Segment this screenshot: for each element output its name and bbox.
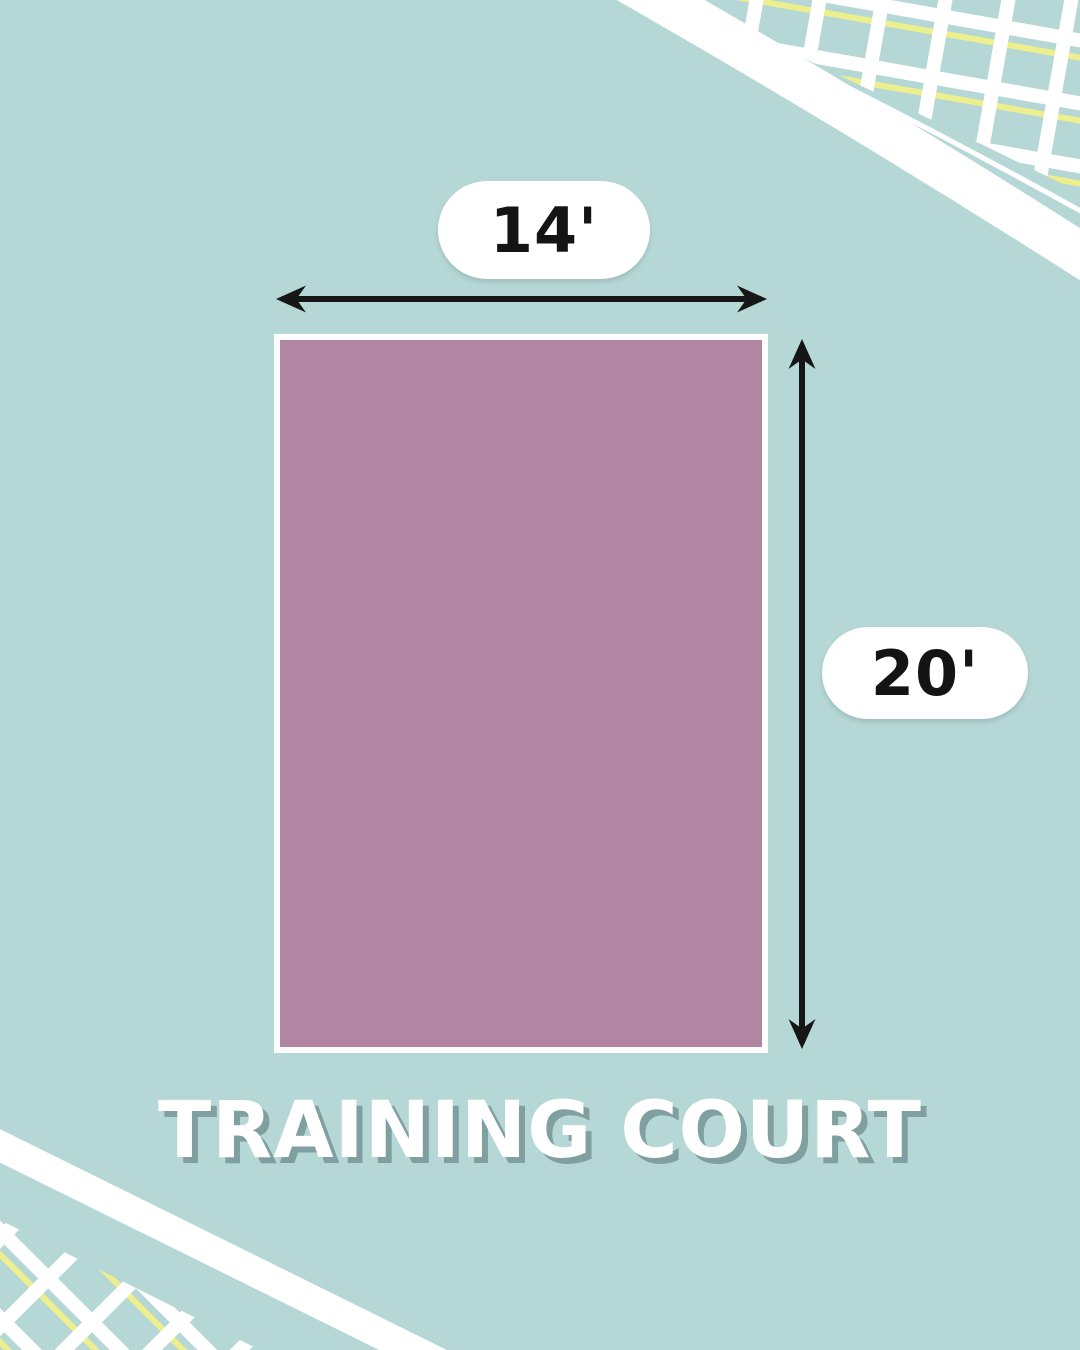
training-court-area [274,334,768,1053]
width-dimension-label: 14' [438,181,650,279]
racket-rim-band-top-right [612,0,1080,272]
width-dimension-value: 14' [490,194,598,267]
height-dimension-label: 20' [822,627,1028,719]
poster-canvas: 14' 20' TRAINING COURT [0,0,1080,1350]
height-dimension-value: 20' [871,637,979,710]
racket-rim-inner-line-top-right [585,0,1080,215]
poster-title: TRAINING COURT [0,1092,1080,1170]
